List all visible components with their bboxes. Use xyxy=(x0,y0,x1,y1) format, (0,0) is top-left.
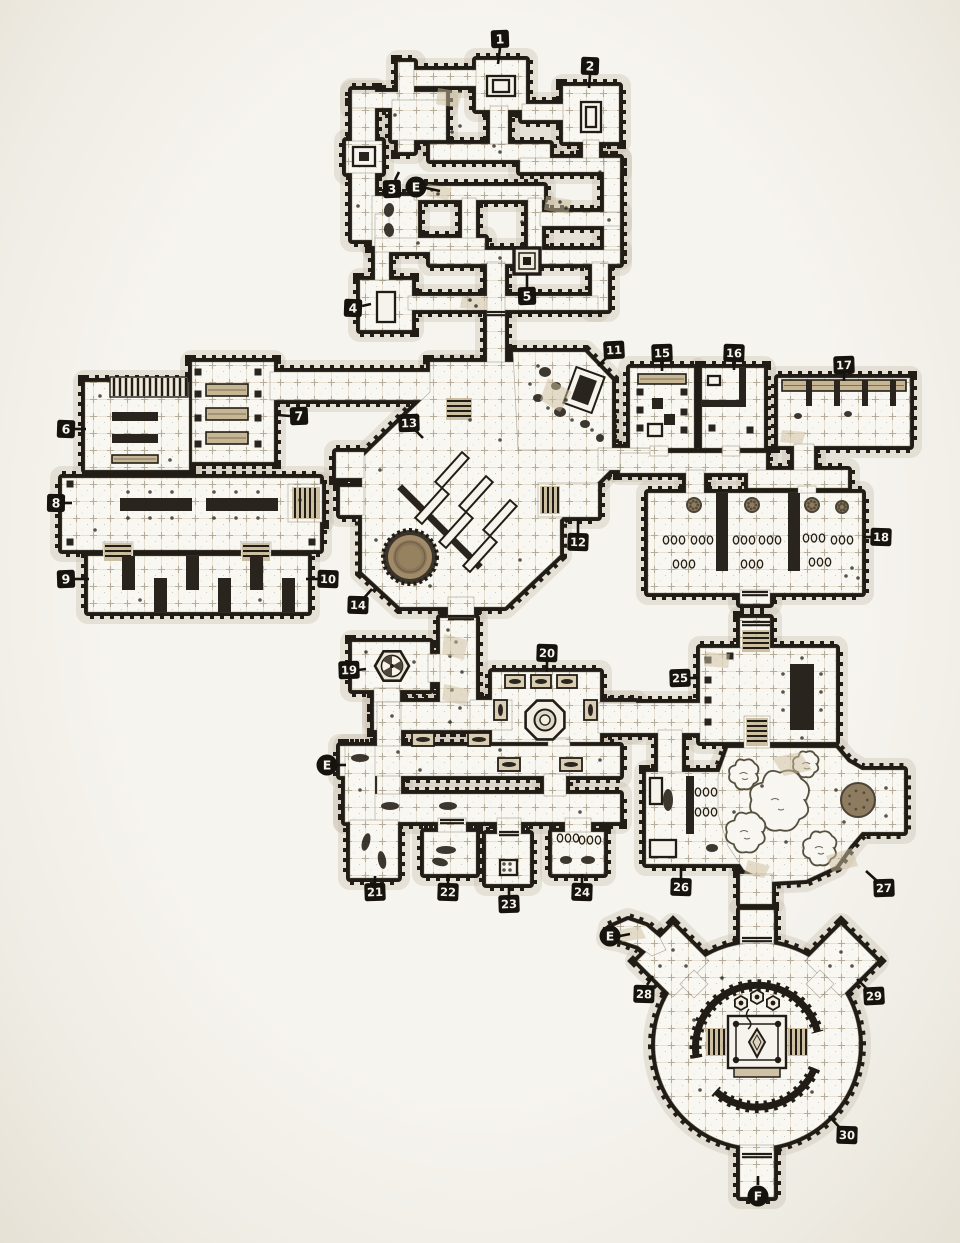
floor-guardrooms-cavern xyxy=(658,730,682,775)
marker-label: E xyxy=(606,929,615,944)
decor-box xyxy=(648,424,662,436)
decor-ov xyxy=(663,789,673,811)
floor-upper-maze xyxy=(490,106,508,150)
decor-tp xyxy=(460,296,488,310)
floor-storerooms xyxy=(650,446,668,456)
decor-tp xyxy=(780,430,806,444)
floor-storerooms xyxy=(686,470,704,496)
marker-label: 29 xyxy=(866,989,883,1004)
decor-jars xyxy=(809,558,830,566)
marker-label: 25 xyxy=(672,671,688,686)
floor-feast-halls xyxy=(62,478,320,550)
marker-label: 26 xyxy=(673,880,689,895)
decor-bar xyxy=(806,380,812,406)
decor-bar xyxy=(686,776,694,834)
decor-bar xyxy=(218,578,231,612)
decor-box xyxy=(493,80,509,92)
floor-crypt-corridors xyxy=(544,774,566,796)
decor-ov xyxy=(794,413,802,419)
map-marker-14: 14 xyxy=(347,589,372,614)
marker-label: 13 xyxy=(401,416,417,431)
decor-bar xyxy=(112,412,158,421)
decor-rub xyxy=(745,498,759,512)
decor-ni xyxy=(505,675,525,688)
decor-bar xyxy=(282,578,295,612)
decor-bar xyxy=(359,152,369,161)
decor-bar xyxy=(250,556,263,590)
floor-guardrooms-cavern xyxy=(740,874,772,904)
marker-leader-line xyxy=(277,415,290,416)
marker-label: 24 xyxy=(574,885,590,900)
marker-label: E xyxy=(323,758,332,773)
floor-crypt-corridors xyxy=(565,818,591,834)
map-marker-5: 5 xyxy=(518,274,537,305)
decor-bar xyxy=(834,380,840,406)
decor-ov xyxy=(844,411,852,417)
decor-ni xyxy=(412,733,434,746)
floor-upper-maze xyxy=(430,144,550,160)
decor-ni xyxy=(531,675,551,688)
decor-oct xyxy=(526,701,565,740)
decor-ov xyxy=(706,844,718,852)
decor-ov xyxy=(436,846,456,854)
decor-ov xyxy=(560,856,572,864)
decor-rub xyxy=(836,501,848,513)
floor-great-hall xyxy=(336,452,364,478)
decor-bar xyxy=(112,434,158,443)
floor-crypt-corridors xyxy=(350,820,398,878)
marker-leader-line xyxy=(589,75,590,88)
decor-ov xyxy=(581,856,595,864)
floor-great-hall xyxy=(448,597,474,617)
decor-box xyxy=(708,376,720,385)
marker-label: 18 xyxy=(873,530,889,545)
decor-st xyxy=(540,486,560,514)
floor-feast-halls xyxy=(270,372,446,400)
decor-ni xyxy=(494,700,507,720)
decor-bar xyxy=(788,493,800,571)
decor-ov xyxy=(596,434,604,442)
marker-label: 20 xyxy=(539,646,555,661)
marker-label: 7 xyxy=(294,408,303,423)
floor-upper-maze xyxy=(522,104,568,120)
decor-tanbar xyxy=(206,432,248,444)
decor-ni xyxy=(498,758,520,771)
decor-box xyxy=(500,860,517,875)
decor-bar xyxy=(206,498,278,511)
decor-ov xyxy=(439,802,457,810)
decor-jars xyxy=(557,834,578,842)
decor-ov xyxy=(580,420,590,428)
marker-label: 19 xyxy=(341,663,357,678)
decor-rub xyxy=(805,498,819,512)
decor-box xyxy=(586,107,596,127)
decor-st xyxy=(742,630,770,652)
marker-label: 1 xyxy=(495,31,504,46)
marker-label: 27 xyxy=(876,881,892,896)
decor-ov xyxy=(539,367,551,377)
dungeon-map: 123E4567891011121314151617181920E2122232… xyxy=(0,0,960,1243)
decor-bar xyxy=(890,380,896,406)
marker-label: 4 xyxy=(348,300,358,315)
marker-label: F xyxy=(754,1189,763,1204)
decor-ov xyxy=(381,802,399,810)
decor-tanbar xyxy=(206,384,248,396)
decor-well xyxy=(383,530,437,584)
map-marker-27: 27 xyxy=(866,871,895,897)
marker-leader-line xyxy=(395,172,399,180)
decor-st xyxy=(746,718,768,746)
marker-label: 15 xyxy=(654,346,670,361)
decor-ov xyxy=(351,754,369,762)
decor-rub xyxy=(687,498,701,512)
marker-label: 30 xyxy=(839,1128,855,1143)
marker-label: 6 xyxy=(61,421,71,436)
marker-label: 5 xyxy=(522,288,531,303)
floor-storerooms xyxy=(748,470,848,488)
decor-bar xyxy=(862,380,868,406)
decor-st xyxy=(446,398,472,420)
decor-rub xyxy=(841,783,875,817)
decor-shr xyxy=(514,248,540,274)
marker-label: 10 xyxy=(320,572,336,587)
decor-bar xyxy=(122,556,135,590)
decor-bar xyxy=(716,493,728,571)
decor-gr xyxy=(110,377,188,397)
decor-tanbar xyxy=(206,408,248,420)
marker-label: 12 xyxy=(570,535,586,550)
decor-tanbar xyxy=(638,374,686,384)
decor-ni xyxy=(468,733,490,746)
decor-jars xyxy=(733,536,754,544)
decor-jars xyxy=(695,788,716,796)
marker-label: 11 xyxy=(606,343,623,358)
decor-box xyxy=(650,778,662,804)
marker-label: 22 xyxy=(440,885,456,900)
marker-label: 16 xyxy=(726,346,742,361)
decor-jars xyxy=(695,808,716,816)
decor-jars xyxy=(741,560,762,568)
decor-tanbar xyxy=(782,380,906,391)
floor-storerooms xyxy=(794,444,814,474)
decor-ni xyxy=(584,700,597,720)
decor-jars xyxy=(579,836,600,844)
marker-label: 17 xyxy=(836,358,852,373)
marker-label: 23 xyxy=(501,897,517,912)
decor-ni xyxy=(560,758,582,771)
marker-label: 21 xyxy=(367,885,383,900)
floor-upper-maze xyxy=(392,100,446,140)
decor-box xyxy=(377,292,395,322)
marker-label: 28 xyxy=(636,987,652,1002)
marker-label: 8 xyxy=(52,495,61,510)
marker-label: E xyxy=(412,180,421,195)
floor-upper-maze xyxy=(604,158,620,258)
decor-jars xyxy=(759,536,780,544)
marker-label: 9 xyxy=(61,571,70,586)
decor-jars xyxy=(663,536,684,544)
decor-ni xyxy=(557,675,577,688)
marker-label: 3 xyxy=(387,181,396,196)
decor-hex xyxy=(375,651,409,680)
decor-tp xyxy=(704,652,730,668)
map-marker-30: 30 xyxy=(829,1116,858,1144)
decor-bar xyxy=(186,556,199,590)
decor-bar xyxy=(664,414,675,425)
dungeon-map-page: 123E4567891011121314151617181920E2122232… xyxy=(0,0,960,1243)
decor-bar xyxy=(154,578,167,612)
marker-label: 2 xyxy=(585,58,594,73)
decor-box xyxy=(650,840,676,857)
decor-bar xyxy=(120,498,192,511)
floor-great-hall xyxy=(340,487,364,515)
decor-st xyxy=(292,487,320,519)
decor-tanbar xyxy=(112,455,158,463)
decor-jars xyxy=(831,536,852,544)
decor-bar xyxy=(739,368,746,407)
floor-upper-maze xyxy=(414,70,480,86)
floor-storerooms xyxy=(722,446,740,456)
decor-jars xyxy=(673,560,694,568)
decor-bar xyxy=(790,664,814,730)
decor-jars xyxy=(803,534,824,542)
floor-guardrooms-cavern xyxy=(598,703,710,733)
decor-bar xyxy=(652,398,663,409)
marker-label: 14 xyxy=(350,598,366,613)
decor-jars xyxy=(691,536,712,544)
